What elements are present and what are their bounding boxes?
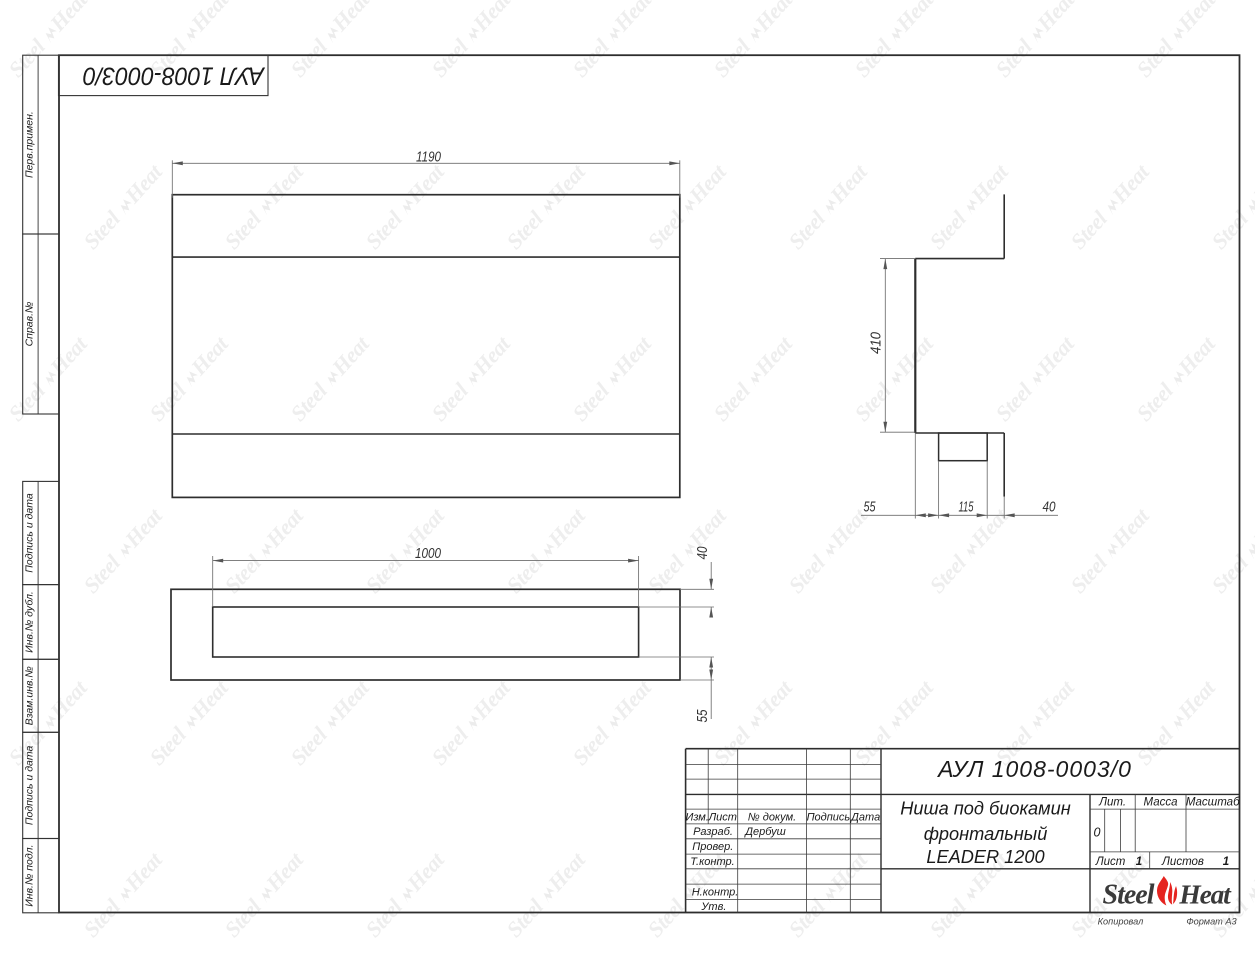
svg-text:Инв.№ дубл.: Инв.№ дубл.	[24, 591, 36, 653]
svg-text:1190: 1190	[416, 148, 441, 165]
svg-text:фронтальный: фронтальный	[924, 824, 1048, 844]
svg-text:АУЛ 1008-0003/0: АУЛ 1008-0003/0	[936, 756, 1132, 782]
svg-text:Листов: Листов	[1161, 856, 1204, 868]
svg-text:40: 40	[1043, 499, 1057, 516]
svg-text:1000: 1000	[415, 545, 441, 562]
svg-text:Heat: Heat	[1178, 879, 1232, 910]
svg-text:Утв.: Утв.	[700, 901, 726, 913]
svg-text:Лит.: Лит.	[1098, 796, 1126, 808]
svg-text:Копировал: Копировал	[1098, 916, 1144, 926]
svg-text:40: 40	[694, 546, 711, 560]
svg-text:Подпись и дата: Подпись и дата	[24, 746, 36, 826]
svg-text:55: 55	[694, 709, 711, 723]
svg-text:0: 0	[1094, 826, 1101, 840]
svg-text:Лист: Лист	[708, 811, 737, 823]
svg-text:Н.контр.: Н.контр.	[692, 886, 739, 898]
svg-text:Steel: Steel	[1103, 880, 1155, 911]
svg-text:Лист: Лист	[1095, 856, 1126, 868]
svg-text:Справ.№: Справ.№	[24, 302, 36, 347]
svg-text:Дата: Дата	[849, 811, 880, 823]
svg-text:Ниша под биокамин: Ниша под биокамин	[900, 799, 1071, 819]
svg-text:№ докум.: № докум.	[748, 811, 796, 823]
svg-text:Изм.: Изм.	[685, 811, 708, 823]
svg-text:410: 410	[868, 331, 885, 354]
svg-text:Дербуш: Дербуш	[743, 826, 786, 838]
svg-text:Провер.: Провер.	[692, 841, 733, 853]
svg-text:Подпись и дата: Подпись и дата	[24, 493, 36, 573]
svg-text:Масштаб: Масштаб	[1186, 796, 1240, 808]
svg-text:Формат А3: Формат А3	[1186, 916, 1237, 926]
svg-text:1: 1	[1136, 856, 1142, 868]
svg-text:АУЛ 1008-0003/0: АУЛ 1008-0003/0	[83, 62, 266, 90]
svg-text:Инв.№ подл.: Инв.№ подл.	[24, 844, 36, 906]
svg-text:Разраб.: Разраб.	[693, 826, 733, 838]
svg-text:1: 1	[1223, 856, 1229, 868]
svg-text:Масса: Масса	[1143, 796, 1177, 808]
svg-text:Подпись: Подпись	[807, 811, 851, 823]
svg-text:Взам.инв.№: Взам.инв.№	[24, 666, 36, 725]
svg-text:55: 55	[864, 499, 876, 516]
svg-text:115: 115	[959, 499, 974, 516]
svg-text:LEADER 1200: LEADER 1200	[926, 847, 1044, 867]
svg-text:Т.контр.: Т.контр.	[690, 856, 734, 868]
svg-text:Перв.примен.: Перв.примен.	[24, 111, 36, 178]
